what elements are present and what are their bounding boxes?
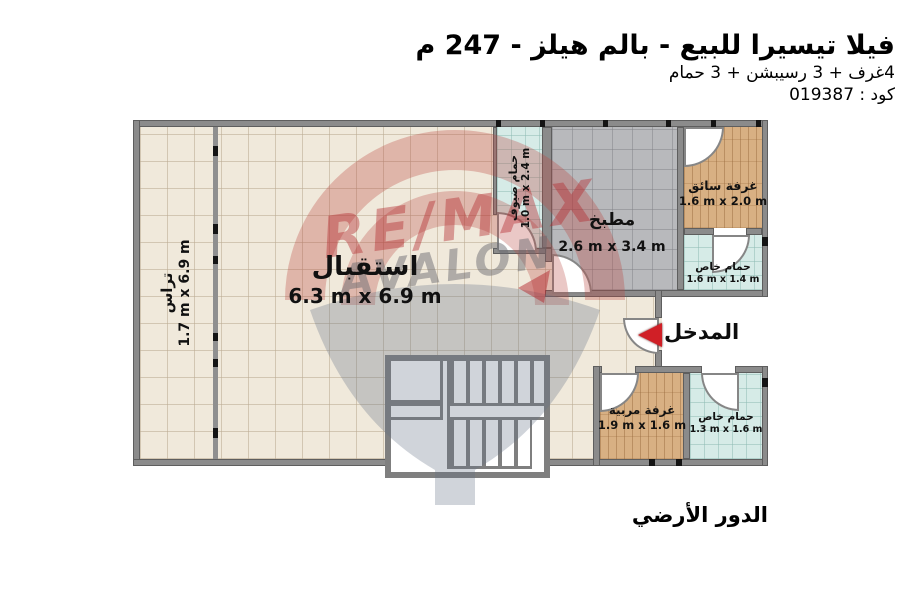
wall-tick — [213, 224, 218, 234]
wall-nanny-top-b — [635, 366, 702, 373]
wall-tick — [213, 256, 218, 264]
room-dims: 1.3 m x 1.6 m — [690, 424, 763, 436]
wall-tick — [711, 120, 716, 127]
wall-tick — [213, 359, 218, 367]
room-dims: 6.3 m x 6.9 m — [288, 284, 441, 309]
room-dims: 1.6 m x 2.0 m — [679, 194, 767, 208]
header: فيلا تيسيرا للبيع - بالم هيلز - 247 م 4غ… — [416, 30, 896, 105]
wall-terrace-divider — [213, 127, 218, 459]
room-dims: 1.6 m x 1.4 m — [687, 274, 760, 286]
guest-bath-label: حمام ضيوف 1.0 m x 2.4 m — [499, 127, 541, 249]
stairs — [385, 355, 550, 478]
floor-name-label: الدور الأرضي — [632, 503, 768, 527]
room-dims: 2.6 m x 3.4 m — [558, 239, 665, 257]
entrance-arrow-icon — [638, 323, 662, 347]
wall-left — [133, 120, 140, 466]
wall-tick — [666, 120, 671, 127]
room-name: غرفة مربية — [609, 403, 676, 418]
stairs-landing — [391, 361, 443, 403]
room-name: غرفة سائق — [688, 178, 757, 194]
stairs-mid-left — [391, 403, 443, 420]
wall-tick — [213, 146, 218, 156]
wall-tick — [676, 459, 682, 466]
wall-driver-divider-a — [684, 228, 714, 235]
nanny-bath-label: حمام خاص 1.3 m x 1.6 m — [688, 408, 764, 438]
nanny-room-label: غرفة مربية 1.9 m x 1.6 m — [597, 398, 687, 438]
room-name: حمام خاص — [695, 261, 751, 274]
wall-tick — [540, 120, 545, 127]
room-dims: 1.9 m x 1.6 m — [598, 418, 686, 432]
wall-tick — [756, 120, 761, 127]
kitchen-label: مطبخ 2.6 m x 3.4 m — [552, 203, 672, 263]
reception-label: استقبال 6.3 m x 6.9 m — [260, 248, 470, 312]
wall-tick — [762, 378, 768, 387]
wall-entrance-up — [655, 290, 662, 318]
wall-tick — [213, 428, 218, 438]
stairs-upper-treads — [447, 361, 545, 403]
wall-kitchen-left — [542, 127, 552, 248]
room-name: حمام خاص — [698, 411, 754, 424]
wall-tick — [762, 237, 768, 246]
driver-room-label: غرفة سائق 1.6 m x 2.0 m — [676, 172, 770, 214]
room-name: مطبخ — [589, 210, 635, 231]
room-name: حمام ضيوف — [507, 155, 521, 221]
terrace-label: تراس 1.7 m x 6.9 m — [154, 218, 198, 368]
page-title: فيلا تيسيرا للبيع - بالم هيلز - 247 م — [416, 30, 896, 62]
wall-top — [133, 120, 768, 127]
wall-driver-divider-b — [746, 228, 762, 235]
wall-tick — [603, 120, 608, 127]
stairs-lower-treads — [447, 420, 532, 469]
stairs-mid-right — [447, 403, 544, 420]
driver-bath-label: حمام خاص 1.6 m x 1.4 m — [680, 258, 766, 288]
wall-tick — [213, 333, 218, 341]
room-dims: 1.7 m x 6.9 m — [177, 239, 195, 346]
wall-tick — [496, 120, 501, 127]
room-name: تراس — [158, 273, 177, 314]
room-dims: 1.0 m x 2.4 m — [520, 148, 533, 228]
entrance-label: المدخل — [664, 320, 739, 344]
room-name: استقبال — [312, 251, 419, 284]
page-subtitle: 4غرف + 3 رسيبشن + 3 حمام — [416, 63, 896, 83]
wall-kitchen-left-low — [545, 248, 552, 262]
wall-guest-bath-left — [493, 127, 497, 215]
wall-tick — [649, 459, 655, 466]
listing-code: كود : 019387 — [416, 85, 896, 105]
